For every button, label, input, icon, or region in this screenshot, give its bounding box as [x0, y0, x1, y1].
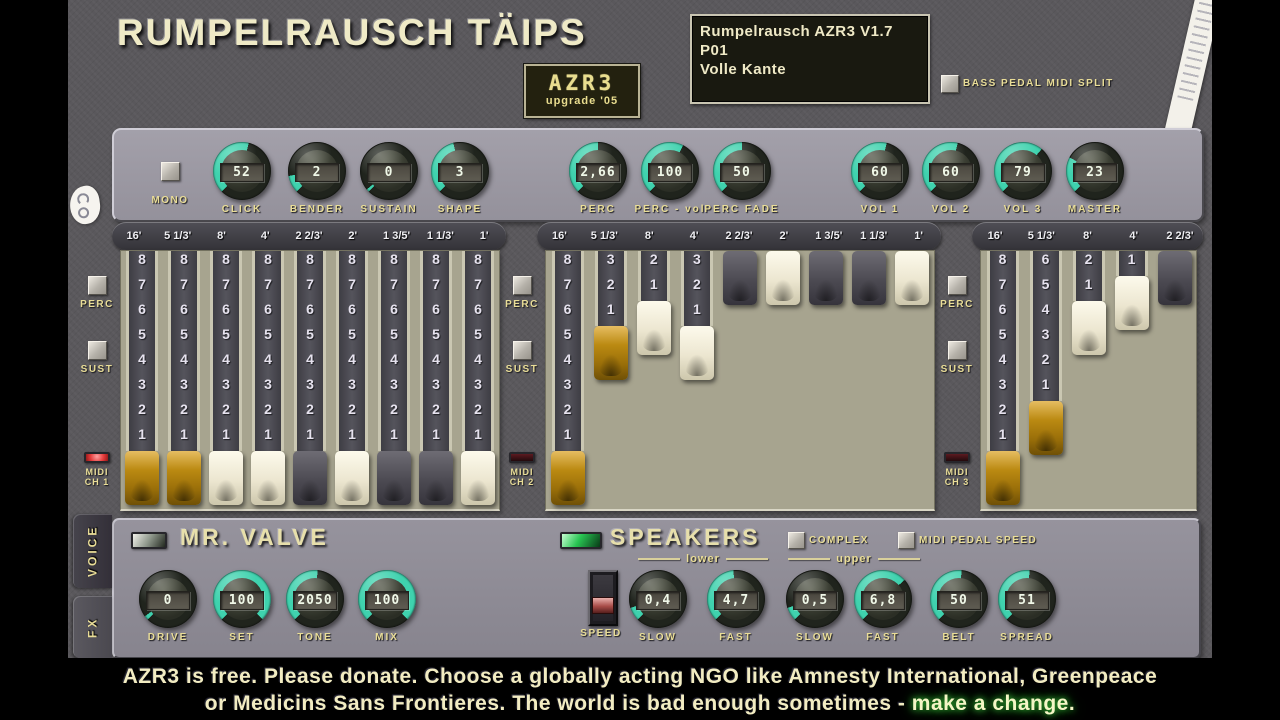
drawbar-footage-label: 5 1/3' [156, 230, 200, 242]
top-click-knob[interactable]: 52CLICK [213, 142, 271, 200]
drawbar-scale-number: 3 [598, 251, 624, 276]
drawbar-handle[interactable] [1158, 251, 1192, 305]
drawbar-scale-number: 3 [297, 376, 323, 401]
drawbar-scale-number: 7 [171, 276, 197, 301]
drawbar-scale-number: 4 [171, 351, 197, 376]
drawbar-scale-number: 2 [213, 401, 239, 426]
drawbar-scale-number: 3 [339, 376, 365, 401]
valve-mix-value-display: 100 [365, 591, 409, 610]
tab-fx-label: FX [73, 596, 112, 658]
speakers-spread-5-value-display: 51 [1005, 591, 1049, 610]
badge-subtitle: upgrade '05 [526, 95, 638, 107]
valve-drive-knob[interactable]: 0DRIVE [139, 570, 197, 628]
drawbar-scale-number: 6 [129, 301, 155, 326]
drawbar-scale-number: 7 [381, 276, 407, 301]
drawbar-manual-2-1 1/3' [848, 251, 891, 509]
speed-toggle-handle[interactable] [592, 597, 614, 614]
drawbar-body-manual-1: 8765432187654321876543218765432187654321… [120, 250, 500, 511]
top-master-knob[interactable]: 23MASTER [1066, 142, 1124, 200]
drawbar-footage-label: 1 1/3' [851, 230, 896, 242]
midi-pedal-speed-label: MIDI PEDAL SPEED [919, 535, 1037, 546]
drawbar-scale-number: 1 [297, 426, 323, 451]
drawbar-scale-number: 7 [339, 276, 365, 301]
drawbar-shaft: 87654321 [462, 251, 494, 451]
perc-label-manual-1: PERC [73, 299, 121, 310]
drawbar-handle[interactable] [293, 451, 327, 505]
drawbar-footage-label: 1 1/3' [418, 230, 462, 242]
valve-tone-value-display: 2050 [293, 591, 337, 610]
sust-label-manual-2: SUST [498, 364, 546, 375]
drawbar-scale-number: 1 [171, 426, 197, 451]
drawbar-scale-number: 2 [598, 276, 624, 301]
drawbar-footage-label: 1' [462, 230, 506, 242]
drawbar-pedal-2 2/3' [1153, 251, 1196, 509]
sust-label-manual-1: SUST [73, 364, 121, 375]
drawbar-handle[interactable] [723, 251, 757, 305]
drawbar-scale-number: 2 [555, 401, 581, 426]
drawbar-footage-label: 4' [1111, 230, 1157, 242]
speakers-led[interactable] [560, 532, 602, 549]
sust-label-pedal: SUST [933, 364, 981, 375]
drawbar-scale-number: 2 [171, 401, 197, 426]
drawbar-scale-number: 1 [423, 426, 449, 451]
drawbar-shaft: 87654321 [420, 251, 452, 451]
drawbar-scale-number: 6 [555, 301, 581, 326]
drawbar-scale-number: 1 [598, 301, 624, 326]
doodle-sticker [68, 184, 102, 226]
drawbar-handle[interactable] [1029, 401, 1063, 455]
midi-led-manual-2[interactable] [509, 452, 535, 463]
drawbar-scale-number: 6 [255, 301, 281, 326]
make-a-change-link[interactable]: make a change. [912, 692, 1075, 715]
mono-button[interactable] [161, 162, 180, 181]
donation-line2: or Medicins Sans Frontieres. The world i… [0, 690, 1280, 717]
drawbar-body-manual-2: 8765432132121321 [545, 250, 935, 511]
paper-sticker [1163, 0, 1212, 141]
mr-valve-title: MR. VALVE [180, 524, 329, 551]
drawbar-scale-number: 5 [171, 326, 197, 351]
drawbar-scale-number: 5 [255, 326, 281, 351]
top-perc-vol-knob[interactable]: 100PERC - vol [641, 142, 699, 200]
drawbar-scale-number: 4 [381, 351, 407, 376]
bass-pedal-midi-split-checkbox[interactable] [941, 75, 959, 93]
drawbar-scale-number: 1 [1076, 276, 1102, 301]
drawbar-scale-number: 1 [339, 426, 365, 451]
drawbar-scale-number: 8 [255, 251, 281, 276]
drawbar-scale-number: 6 [297, 301, 323, 326]
midi-led-pedal[interactable] [944, 452, 970, 463]
drawbar-shaft: 1 [1116, 251, 1148, 276]
bass-pedal-midi-split-label: BASS PEDAL MIDI SPLIT [963, 78, 1114, 89]
top-shape-value-display: 3 [438, 163, 482, 182]
preset-display-line1: Rumpelrausch AZR3 V1.7 P01 [700, 22, 920, 60]
azr3-version-badge: AZR3 upgrade '05 [524, 64, 640, 118]
drawbar-handle[interactable] [167, 451, 201, 505]
speakers-slow-2-knob[interactable]: 0,5SLOW [786, 570, 844, 628]
drawbar-shaft: 87654321 [294, 251, 326, 451]
drawbar-handle[interactable] [125, 451, 159, 505]
perc-button-pedal[interactable] [948, 276, 967, 295]
drawbar-scale-number: 2 [339, 401, 365, 426]
drawbar-scale-number: 3 [171, 376, 197, 401]
drawbar-scale-number: 8 [555, 251, 581, 276]
drawbar-manual-1-8': 87654321 [205, 251, 247, 509]
drawbar-header-manual-2: 16'5 1/3'8'4'2 2/3'2'1 3/5'1 1/3'1' [537, 222, 941, 250]
drawbar-scale-number: 5 [1033, 276, 1059, 301]
drawbar-pedal-8': 21 [1067, 251, 1110, 509]
drawbar-scale-number: 2 [1076, 251, 1102, 276]
drawbar-footage-label: 16' [972, 230, 1018, 242]
drawbar-scale-number: 4 [297, 351, 323, 376]
plugin-window: RUMPELRAUSCH TÄIPS AZR3 upgrade '05 Rump… [0, 0, 1280, 720]
drawbar-scale-number: 5 [465, 326, 491, 351]
speakers-fast-1-knob[interactable]: 4,7FAST [707, 570, 765, 628]
drawbar-scale-number: 7 [990, 276, 1016, 301]
speakers-fast-3-knob[interactable]: 6,8FAST [854, 570, 912, 628]
drawbar-scale-number: 3 [990, 376, 1016, 401]
midi-channel-label-pedal: CH 3 [933, 477, 981, 487]
midi-label-pedal: MIDI [933, 467, 981, 477]
drawbar-footage-label: 16' [112, 230, 156, 242]
speakers-slow-2-value-display: 0,5 [793, 591, 837, 610]
drawbar-handle[interactable] [594, 326, 628, 380]
midi-channel-label-manual-1: CH 1 [73, 477, 121, 487]
preset-display-line2: Volle Kante [700, 60, 920, 79]
drawbar-scale-number: 7 [255, 276, 281, 301]
top-bender-knob[interactable]: 2BENDER [288, 142, 346, 200]
donation-banner: AZR3 is free. Please donate. Choose a gl… [0, 658, 1280, 720]
drawbar-scale-number: 1 [213, 426, 239, 451]
perc-button-manual-2[interactable] [513, 276, 532, 295]
drawbar-footage-label: 4' [243, 230, 287, 242]
mr-valve-led[interactable] [131, 532, 167, 549]
speakers-slow-0-knob[interactable]: 0,4SLOW [629, 570, 687, 628]
drawbar-scale-number: 5 [339, 326, 365, 351]
drawbar-footage-label: 2' [331, 230, 375, 242]
drawbar-scale-number: 7 [423, 276, 449, 301]
drawbar-scale-number: 8 [213, 251, 239, 276]
upper-group-header: upper [788, 553, 920, 565]
drawbar-scale-number: 8 [297, 251, 323, 276]
drawbar-scale-number: 3 [129, 376, 155, 401]
drawbar-scale-number: 6 [381, 301, 407, 326]
drawbar-handle[interactable] [1072, 301, 1106, 355]
drawbar-scale-number: 7 [213, 276, 239, 301]
drawbar-scale-number: 3 [555, 376, 581, 401]
drawbar-scale-number: 1 [255, 426, 281, 451]
speakers-spread-5-knob[interactable]: 51SPREAD [998, 570, 1056, 628]
drawbar-footage-label: 1 3/5' [375, 230, 419, 242]
drawbar-manual-1-16': 87654321 [121, 251, 163, 509]
drawbar-manual-1-1': 87654321 [457, 251, 499, 509]
drawbar-scale-number: 8 [465, 251, 491, 276]
drawbar-handle[interactable] [1115, 276, 1149, 330]
drawbar-scale-number: 4 [423, 351, 449, 376]
drawbar-handle[interactable] [986, 451, 1020, 505]
drawbar-handle[interactable] [637, 301, 671, 355]
drawbar-handle[interactable] [461, 451, 495, 505]
drawbar-handle[interactable] [335, 451, 369, 505]
drawbar-scale-number: 5 [381, 326, 407, 351]
drawbar-scale-number: 7 [129, 276, 155, 301]
midi-led-manual-1[interactable] [84, 452, 110, 463]
drawbar-scale-number: 4 [339, 351, 365, 376]
drawbar-shaft: 321 [681, 251, 713, 326]
perc-label-pedal: PERC [933, 299, 981, 310]
drawbar-scale-number: 4 [555, 351, 581, 376]
midi-pedal-speed-checkbox[interactable] [898, 532, 915, 549]
drawbar-scale-number: 6 [213, 301, 239, 326]
drawbar-scale-number: 5 [555, 326, 581, 351]
drawbar-scale-number: 4 [129, 351, 155, 376]
drawbar-scale-number: 2 [423, 401, 449, 426]
drawbar-shaft: 87654321 [168, 251, 200, 451]
drawbar-scale-number: 2 [381, 401, 407, 426]
drawbar-scale-number: 6 [990, 301, 1016, 326]
drawbar-scale-number: 1 [684, 301, 710, 326]
drawbar-scale-number: 8 [339, 251, 365, 276]
speakers-fast-1-value-display: 4,7 [714, 591, 758, 610]
valve-set-knob[interactable]: 100SET [213, 570, 271, 628]
drawbar-scale-number: 7 [297, 276, 323, 301]
drawbar-manual-2-8': 21 [632, 251, 675, 509]
speakers-slow-0-value-display: 0,4 [636, 591, 680, 610]
drawbar-shaft: 321 [595, 251, 627, 326]
top-perc-fade-knob[interactable]: 50PERC FADE [713, 142, 771, 200]
sust-button-manual-2[interactable] [513, 341, 532, 360]
drawbar-handle[interactable] [895, 251, 929, 305]
drawbar-handle[interactable] [809, 251, 843, 305]
top-vol-1-knob[interactable]: 60VOL 1 [851, 142, 909, 200]
drawbar-scale-number: 4 [465, 351, 491, 376]
drawbar-footage-label: 2 2/3' [287, 230, 331, 242]
drawbar-scale-number: 8 [381, 251, 407, 276]
drawbar-pedal-5 1/3': 654321 [1024, 251, 1067, 509]
drawbar-scale-number: 3 [381, 376, 407, 401]
drawbar-scale-number: 3 [465, 376, 491, 401]
drawbar-scale-number: 6 [339, 301, 365, 326]
top-perc-knob[interactable]: 2,66PERC [569, 142, 627, 200]
drawbar-scale-number: 1 [465, 426, 491, 451]
donation-line1: AZR3 is free. Please donate. Choose a gl… [0, 663, 1280, 690]
speakers-belt-4-knob[interactable]: 50BELT [930, 570, 988, 628]
drawbar-shaft: 87654321 [987, 251, 1019, 451]
drawbar-handle[interactable] [209, 451, 243, 505]
drawbar-footage-label: 8' [627, 230, 672, 242]
drawbar-scale-number: 2 [255, 401, 281, 426]
drawbar-handle[interactable] [251, 451, 285, 505]
top-perc-fade-value-display: 50 [720, 163, 764, 182]
top-vol-1-value-display: 60 [858, 163, 902, 182]
drawbar-scale-number: 8 [423, 251, 449, 276]
drawbar-scale-number: 5 [990, 326, 1016, 351]
midi-channel-label-manual-2: CH 2 [498, 477, 546, 487]
drawbar-scale-number: 6 [423, 301, 449, 326]
drawbar-shaft: 21 [1073, 251, 1105, 301]
sust-button-pedal[interactable] [948, 341, 967, 360]
drawbar-scale-number: 5 [297, 326, 323, 351]
drawbar-scale-number: 1 [555, 426, 581, 451]
top-vol-3-value-display: 79 [1001, 163, 1045, 182]
drawbar-handle[interactable] [766, 251, 800, 305]
drawbar-manual-1-5 1/3': 87654321 [163, 251, 205, 509]
drawbar-scale-number: 1 [1119, 251, 1145, 276]
top-shape-label: SHAPE [397, 204, 523, 215]
drawbar-handle[interactable] [551, 451, 585, 505]
preset-display[interactable]: Rumpelrausch AZR3 V1.7 P01 Volle Kante [690, 14, 930, 104]
drawbar-manual-1-1 1/3': 87654321 [415, 251, 457, 509]
drawbar-pedal-16': 87654321 [981, 251, 1024, 509]
drawbar-scale-number: 7 [465, 276, 491, 301]
sticker-scribble [1177, 0, 1212, 101]
drawbar-scale-number: 6 [1033, 251, 1059, 276]
valve-set-value-display: 100 [220, 591, 264, 610]
tab-voice-label: VOICE [73, 514, 112, 588]
tab-fx[interactable]: FX [73, 596, 112, 658]
valve-drive-value-display: 0 [146, 591, 190, 610]
badge-name: AZR3 [526, 71, 638, 95]
top-master-value-display: 23 [1073, 163, 1117, 182]
drawbar-shaft: 87654321 [552, 251, 584, 451]
drawbar-scale-number: 7 [555, 276, 581, 301]
drawbar-scale-number: 1 [381, 426, 407, 451]
top-sustain-value-display: 0 [367, 163, 411, 182]
drawbar-scale-number: 5 [213, 326, 239, 351]
drawbar-footage-label: 8' [1064, 230, 1110, 242]
complex-label: COMPLEX [809, 535, 869, 546]
drawbar-manual-2-16': 87654321 [546, 251, 589, 509]
drawbar-shaft: 87654321 [126, 251, 158, 451]
drawbar-scale-number: 2 [465, 401, 491, 426]
drawbar-scale-number: 3 [213, 376, 239, 401]
drawbar-body-pedal: 87654321654321211 [980, 250, 1197, 511]
top-vol-3-knob[interactable]: 79VOL 3 [994, 142, 1052, 200]
drawbar-scale-number: 3 [684, 251, 710, 276]
drawbar-scale-number: 4 [990, 351, 1016, 376]
drawbar-scale-number: 3 [1033, 326, 1059, 351]
drawbar-footage-label: 16' [537, 230, 582, 242]
top-click-value-display: 52 [220, 163, 264, 182]
midi-label-manual-1: MIDI [73, 467, 121, 477]
drawbar-scale-number: 3 [423, 376, 449, 401]
drawbar-scale-number: 6 [465, 301, 491, 326]
valve-mix-knob[interactable]: 100MIX [358, 570, 416, 628]
drawbar-scale-number: 3 [255, 376, 281, 401]
drawbar-scale-number: 2 [641, 251, 667, 276]
drawbar-manual-2-1' [891, 251, 934, 509]
drawbar-scale-number: 5 [129, 326, 155, 351]
drawbar-handle[interactable] [852, 251, 886, 305]
top-perc-vol-value-display: 100 [648, 163, 692, 182]
drawbar-shaft: 87654321 [252, 251, 284, 451]
drawbar-handle[interactable] [377, 451, 411, 505]
sust-button-manual-1[interactable] [88, 341, 107, 360]
valve-tone-knob[interactable]: 2050TONE [286, 570, 344, 628]
drawbar-shaft: 87654321 [378, 251, 410, 451]
drawbar-shaft: 21 [638, 251, 670, 301]
tab-voice[interactable]: VOICE [73, 514, 112, 588]
drawbar-scale-number: 6 [171, 301, 197, 326]
drawbar-handle[interactable] [680, 326, 714, 380]
speakers-fast-3-value-display: 6,8 [861, 591, 905, 610]
speakers-title: SPEAKERS [610, 524, 761, 551]
drawbar-manual-2-4': 321 [675, 251, 718, 509]
drawbar-scale-number: 2 [129, 401, 155, 426]
drawbar-shaft: 654321 [1030, 251, 1062, 401]
top-vol-2-knob[interactable]: 60VOL 2 [922, 142, 980, 200]
drawbar-scale-number: 2 [1033, 351, 1059, 376]
top-vol-2-value-display: 60 [929, 163, 973, 182]
drawbar-manual-1-4': 87654321 [247, 251, 289, 509]
drawbar-shaft: 87654321 [210, 251, 242, 451]
top-perc-value-display: 2,66 [576, 163, 620, 182]
drawbar-manual-1-2 2/3': 87654321 [289, 251, 331, 509]
drawbar-footage-label: 2 2/3' [1157, 230, 1203, 242]
drawbar-footage-label: 1' [896, 230, 941, 242]
drawbar-handle[interactable] [419, 451, 453, 505]
speakers-belt-4-value-display: 50 [937, 591, 981, 610]
drawbar-header-manual-1: 16'5 1/3'8'4'2 2/3'2'1 3/5'1 1/3'1' [112, 222, 506, 250]
complex-checkbox[interactable] [788, 532, 805, 549]
drawbar-shaft: 87654321 [336, 251, 368, 451]
drawbar-manual-2-1 3/5' [805, 251, 848, 509]
drawbar-footage-label: 2 2/3' [717, 230, 762, 242]
drawbar-manual-2-2 2/3' [718, 251, 761, 509]
speed-toggle-switch[interactable] [588, 570, 618, 626]
drawbar-manual-2-5 1/3': 321 [589, 251, 632, 509]
perc-button-manual-1[interactable] [88, 276, 107, 295]
top-master-label: MASTER [1032, 204, 1158, 215]
lower-group-header: lower [638, 553, 768, 565]
top-sustain-knob[interactable]: 0SUSTAIN [360, 142, 418, 200]
midi-label-manual-2: MIDI [498, 467, 546, 477]
drawbar-scale-number: 1 [990, 426, 1016, 451]
drawbar-scale-number: 1 [129, 426, 155, 451]
drawbar-footage-label: 2' [761, 230, 806, 242]
letterbox-right [1212, 0, 1280, 720]
drawbar-pedal-4': 1 [1110, 251, 1153, 509]
drawbar-scale-number: 4 [213, 351, 239, 376]
drawbar-manual-1-1 3/5': 87654321 [373, 251, 415, 509]
drawbar-scale-number: 5 [423, 326, 449, 351]
drawbar-footage-label: 1 3/5' [806, 230, 851, 242]
drawbar-scale-number: 4 [255, 351, 281, 376]
drawbar-scale-number: 8 [171, 251, 197, 276]
drawbar-header-pedal: 16'5 1/3'8'4'2 2/3' [972, 222, 1203, 250]
drawbar-scale-number: 1 [1033, 376, 1059, 401]
top-perc-fade-label: PERC FADE [679, 204, 805, 215]
top-shape-knob[interactable]: 3SHAPE [431, 142, 489, 200]
app-title: RUMPELRAUSCH TÄIPS [117, 12, 587, 54]
drawbar-footage-label: 5 1/3' [1018, 230, 1064, 242]
drawbar-scale-number: 8 [129, 251, 155, 276]
speakers-spread-5-label: SPREAD [964, 632, 1090, 643]
drawbar-manual-1-2': 87654321 [331, 251, 373, 509]
drawbar-manual-2-2' [762, 251, 805, 509]
drawbar-scale-number: 2 [297, 401, 323, 426]
drawbar-scale-number: 2 [990, 401, 1016, 426]
drawbar-scale-number: 4 [1033, 301, 1059, 326]
drawbar-footage-label: 8' [200, 230, 244, 242]
drawbar-scale-number: 1 [641, 276, 667, 301]
drawbar-footage-label: 4' [672, 230, 717, 242]
top-bender-value-display: 2 [295, 163, 339, 182]
perc-label-manual-2: PERC [498, 299, 546, 310]
valve-mix-label: MIX [324, 632, 450, 643]
drawbar-scale-number: 2 [684, 276, 710, 301]
drawbar-scale-number: 8 [990, 251, 1016, 276]
drawbar-footage-label: 5 1/3' [582, 230, 627, 242]
